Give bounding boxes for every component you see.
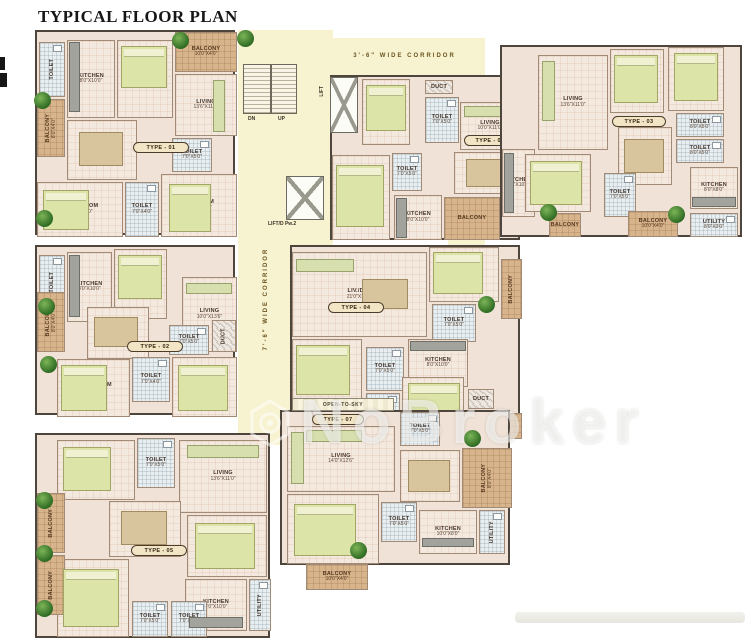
room-name: TOILET (49, 59, 56, 80)
tree-icon (36, 600, 53, 617)
bed-icon (118, 255, 162, 299)
bed-icon (63, 447, 111, 491)
room-name: TOILET (389, 516, 410, 523)
bed-icon (433, 252, 483, 294)
room-dims: 8'0"X5'0" (690, 125, 711, 131)
room-utility: UTILITY (249, 579, 271, 631)
kitchen-counter-icon (396, 198, 407, 238)
room-toilet: TOILET7'0"X5'0" (137, 438, 175, 488)
room-name: TOILET (690, 145, 711, 152)
kitchen-counter-icon (410, 341, 466, 351)
tree-icon (36, 210, 53, 227)
room-name: TOILET (132, 203, 153, 210)
room-toilet: TOILET7'0"X5'0" (400, 412, 440, 446)
room-duct: DUCT (212, 320, 236, 352)
room-duct: DUCT (468, 389, 494, 409)
tree-icon (40, 356, 57, 373)
room-dims: 8'0"X3'0" (703, 225, 725, 231)
room-toilet: TOILET8'0"X5'0" (676, 113, 724, 137)
tree-icon (350, 542, 367, 559)
room-name: BALCONY (48, 509, 55, 538)
tree-icon (36, 545, 53, 562)
room-name: BALCONY (323, 571, 352, 578)
bed-icon (294, 504, 356, 556)
tree-icon (464, 430, 481, 447)
room-toilet: TOILET (39, 42, 65, 97)
room-toilet: TOILET8'0"X5'0" (676, 139, 724, 163)
bed-icon (336, 165, 384, 227)
room-name: UTILITY (257, 594, 264, 616)
tree-icon (38, 298, 55, 315)
sofa-icon (186, 283, 232, 294)
room-dims: 10'0"X11'0" (477, 126, 502, 132)
bed-icon (296, 345, 350, 395)
sofa-icon (291, 432, 304, 484)
room-dims: 7'0"X5'0" (610, 195, 631, 201)
room-name: TOILET (410, 423, 431, 430)
room-name: KITCHEN (405, 211, 431, 218)
room-name: TOILET (49, 272, 56, 293)
room-dims: 7'0"X5'0" (410, 429, 431, 435)
tree-icon (668, 206, 685, 223)
tree-icon (34, 92, 51, 109)
kitchen-counter-icon (692, 197, 736, 207)
room-kitchen: KITCHEN10'0"X8'0" (419, 510, 477, 554)
open-to-sky: OPEN-TO-SKY (292, 398, 394, 411)
scan-artifact (0, 57, 5, 70)
room-name: BALCONY (508, 275, 515, 304)
room-dims: 7'0"X5'0" (397, 172, 418, 178)
room-balcony: BALCONY10'0"X4'0" (306, 564, 368, 590)
room-balcony: BALCONY (444, 197, 500, 240)
room-name: TOILET (179, 334, 200, 341)
unit-type-03: KITCHEN8'0"X10'0" LIVING13'6"X11'0" BEDR… (500, 45, 742, 237)
room-dims: 10'0"X4'0" (323, 577, 352, 583)
room-balcony: BALCONY (501, 259, 522, 319)
room-toilet: TOILET7'0"X5'0" (425, 97, 459, 143)
room-dims: 8'0"X4'0" (487, 464, 493, 493)
room-name: DUCT (221, 328, 228, 344)
stair-dn-label: DN (248, 117, 255, 122)
dining-table-icon (121, 511, 167, 545)
lift-label: LIFT (320, 86, 325, 97)
kitchen-counter-icon (189, 617, 243, 628)
dining-table-icon (624, 139, 664, 173)
room-toilet: TOILET7'0"X5'0" (366, 347, 404, 391)
room-name: LIVING (210, 470, 235, 477)
lift-shaft-2 (286, 176, 324, 220)
room-dims: 8'0"X4'0" (51, 114, 57, 143)
room-dims: 7'0"X5'0" (432, 120, 453, 126)
room-balcony: BALCONY8'0"X4'0" (462, 448, 512, 508)
unit-type-05: BEDROOM10'0"X11'6" TOILET7'0"X5'0" LIVIN… (35, 433, 270, 638)
room-name: TOILET (375, 363, 396, 370)
bed-icon (178, 365, 228, 411)
tree-icon (478, 296, 495, 313)
floor-plan: KITCHEN8'0"X10'0" TOILET BEDROOM10'0"X11… (0, 0, 745, 640)
kitchen-counter-icon (422, 538, 474, 547)
room-name: KITCHEN (78, 73, 104, 80)
room-living: LIVING13'6"X11'0" (175, 74, 237, 136)
room-dims: 7'0"X5'0" (389, 522, 410, 528)
tree-icon (172, 32, 189, 49)
unit-type-label: TYPE - 02 (127, 341, 183, 352)
page-title: TYPICAL FLOOR PLAN (38, 7, 238, 27)
sofa-icon (296, 259, 354, 272)
room-toilet: TOILET7'0"X4'0" (132, 357, 170, 402)
room-name: BALCONY (458, 215, 487, 222)
room-dims: 8'0"X10'0" (78, 79, 104, 85)
bed-icon (61, 365, 107, 411)
unit-type-02: TOILET KITCHEN8'0"X10'0" BEDROOM10'0"X11… (35, 245, 235, 415)
open-to-sky-label: OPEN-TO-SKY (323, 402, 363, 408)
unit-type-label: TYPE - 05 (131, 545, 187, 556)
sofa-icon (213, 80, 225, 132)
room-dims: 7'0"X4'0" (132, 210, 153, 216)
room-dims: 8'0"X10'0" (77, 287, 103, 293)
unit-type-06: BEDROOM10'0"X11'6" DUCT TOILET7'0"X5'0" … (330, 75, 520, 240)
corridor-main-label: 7'-6" WIDE CORRIDOR (263, 219, 269, 379)
unit-type-label: TYPE - 04 (328, 302, 384, 313)
room-toilet: TOILET7'0"X5'0" (132, 601, 168, 637)
room-dims: 8'0"X10'0" (425, 363, 451, 369)
room-toilet: TOILET7'0"X5'0" (381, 502, 417, 542)
lift2-label: LIFT/D Pw.2 (268, 222, 296, 227)
room-name: TOILET (141, 373, 162, 380)
room-duct: DUCT (425, 80, 453, 94)
room-name: BALCONY (481, 464, 488, 493)
room-dims: 10'0"X4'0" (639, 224, 668, 230)
tree-icon (36, 492, 53, 509)
bed-icon (530, 161, 582, 205)
dining-table-icon (408, 460, 450, 492)
room-dims: 8'0"X8'0" (701, 188, 727, 194)
room-name: UTILITY (703, 219, 725, 226)
unit-type-label: TYPE - 03 (612, 116, 666, 127)
bed-icon (169, 184, 211, 232)
scan-shadow (515, 612, 745, 623)
room-dims: 13'6"X11'0" (560, 103, 585, 109)
room-dims: 7'0"X5'0" (182, 155, 203, 161)
room-name: BALCONY (45, 114, 52, 143)
room-dims: 14'0"X12'6" (328, 459, 353, 465)
room-dims: 7'0"X4'0" (141, 380, 162, 386)
kitchen-counter-icon (69, 42, 80, 112)
room-name: TOILET (444, 317, 465, 324)
room-toilet: TOILET7'0"X5'0" (432, 304, 476, 342)
bed-icon (121, 46, 167, 88)
room-name: TOILET (140, 613, 161, 620)
room-dims: 8'0"X5'0" (690, 151, 711, 157)
room-name: KITCHEN (701, 182, 727, 189)
room-name: LIVING (477, 120, 502, 127)
room-name: LIVING (328, 453, 353, 460)
room-name: BALCONY (192, 46, 221, 53)
sofa-icon (187, 445, 259, 458)
room-name: TOILET (146, 457, 167, 464)
room-name: LIVING (197, 308, 222, 315)
bed-icon (63, 569, 119, 627)
kitchen-counter-icon (504, 153, 514, 213)
room-dims: 7'0"X5'0" (375, 369, 396, 375)
tree-icon (540, 204, 557, 221)
bed-icon (366, 85, 406, 131)
dining-table-icon (79, 132, 123, 166)
room-name: TOILET (432, 114, 453, 121)
room-name: TOILET (397, 166, 418, 173)
room-toilet: TOILET7'0"X4'0" (125, 182, 159, 237)
room-name: KITCHEN (77, 281, 103, 288)
bed-icon (674, 53, 718, 101)
bed-icon (195, 523, 255, 569)
room-dims: 10'0"X4'0" (192, 52, 221, 58)
room-name: BALCONY (551, 222, 580, 229)
room-name: TOILET (610, 189, 631, 196)
room-dims: 8'0"X10'0" (405, 218, 431, 224)
sofa-icon (542, 61, 555, 121)
staircase (243, 64, 297, 114)
bed-icon (614, 55, 658, 103)
sofa-icon (306, 430, 362, 442)
room-dims: 7'0"X5'0" (444, 323, 465, 329)
stair-up-label: UP (278, 117, 285, 122)
unit-type-label: TYPE - 01 (133, 142, 189, 153)
room-name: TOILET (690, 119, 711, 126)
room-toilet: TOILET7'0"X5'0" (392, 153, 422, 191)
room-name: LIVING (560, 96, 585, 103)
room-utility: UTILITY (479, 510, 505, 554)
tree-icon (237, 30, 254, 47)
kitchen-counter-icon (69, 255, 80, 317)
room-name: KITCHEN (425, 357, 451, 364)
scan-artifact (0, 73, 7, 87)
room-name: BALCONY (48, 571, 55, 600)
unit-type-01: KITCHEN8'0"X10'0" TOILET BEDROOM10'0"X11… (35, 30, 235, 235)
room-name: UTILITY (489, 521, 496, 543)
room-dims: 13'6"X11'0" (210, 477, 235, 483)
room-dims: 7'0"X5'0" (146, 463, 167, 469)
room-name: DUCT (473, 396, 489, 403)
room-name: BALCONY (639, 218, 668, 225)
room-utility: UTILITY8'0"X3'0" (690, 213, 738, 237)
room-name: DUCT (431, 84, 447, 91)
lift-shaft (330, 77, 358, 133)
room-name: KITCHEN (435, 526, 461, 533)
corridor-top-label: 3'-6" WIDE CORRIDOR (322, 53, 487, 59)
unit-type-label: TYPE - 07 (312, 414, 364, 425)
room-dims: 7'0"X5'0" (140, 619, 161, 625)
